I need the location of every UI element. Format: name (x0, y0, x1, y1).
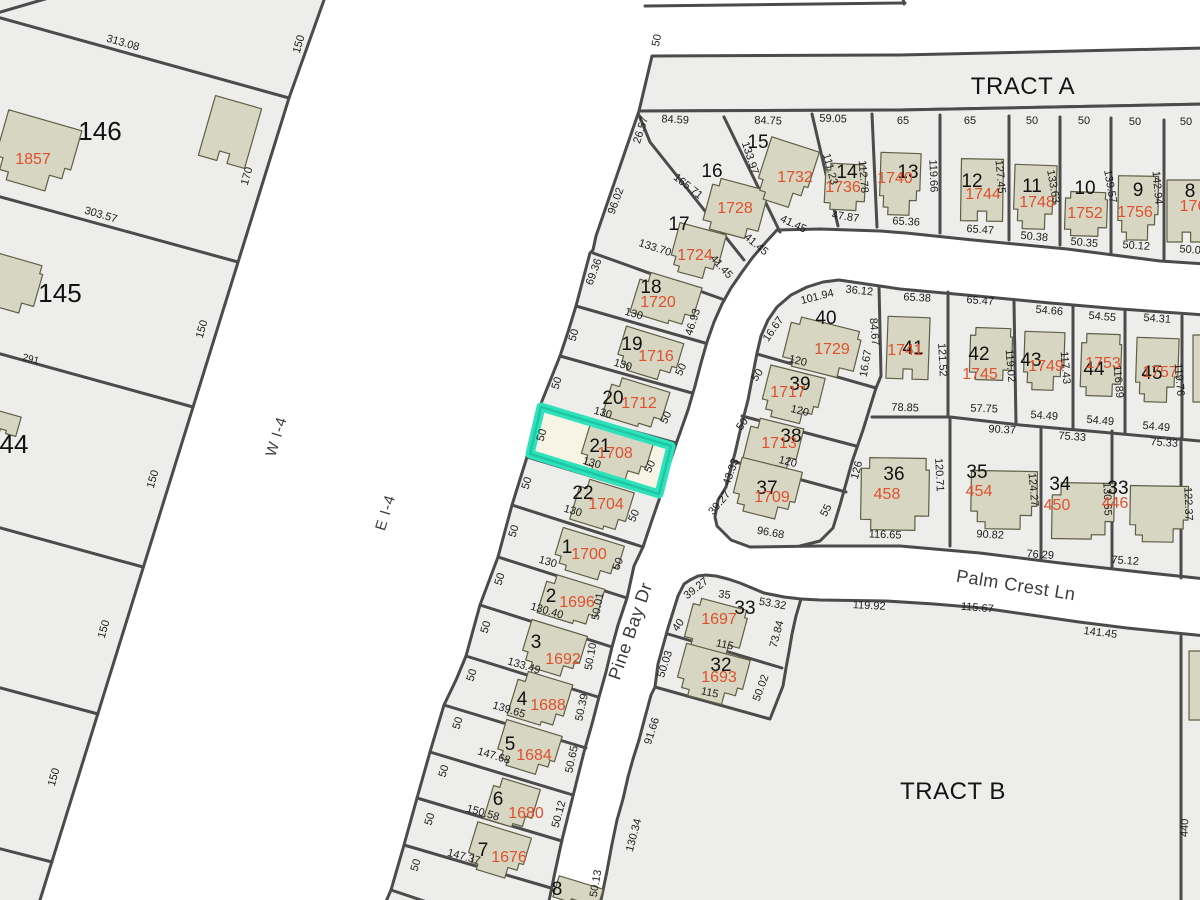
svg-text:454: 454 (966, 483, 993, 500)
svg-text:1708: 1708 (597, 445, 633, 462)
svg-text:2: 2 (546, 586, 557, 607)
svg-text:90.37: 90.37 (988, 423, 1016, 436)
svg-text:84.75: 84.75 (754, 115, 782, 128)
svg-text:TRACT B: TRACT B (900, 778, 1006, 805)
svg-text:1857: 1857 (15, 151, 51, 168)
svg-text:122.37: 122.37 (1181, 487, 1194, 521)
svg-text:84.59: 84.59 (661, 113, 689, 126)
svg-text:440: 440 (1179, 819, 1192, 838)
svg-text:17: 17 (668, 214, 689, 235)
svg-text:1728: 1728 (717, 200, 753, 217)
svg-text:1697: 1697 (701, 611, 737, 628)
svg-text:1717: 1717 (770, 384, 806, 401)
svg-text:42: 42 (968, 344, 989, 365)
svg-text:1716: 1716 (638, 348, 674, 365)
svg-text:50: 50 (1180, 116, 1192, 128)
svg-text:1700: 1700 (571, 546, 607, 563)
svg-text:65: 65 (897, 115, 909, 127)
svg-text:3: 3 (531, 632, 542, 653)
svg-text:65.38: 65.38 (903, 291, 931, 304)
svg-text:1693: 1693 (701, 669, 737, 686)
svg-text:1724: 1724 (677, 247, 713, 264)
svg-text:84.67: 84.67 (867, 318, 881, 346)
svg-text:75.12: 75.12 (1111, 554, 1139, 568)
svg-text:50: 50 (1026, 115, 1038, 127)
svg-text:54.49: 54.49 (1142, 420, 1170, 434)
svg-text:1704: 1704 (588, 496, 624, 513)
svg-text:75.33: 75.33 (1150, 436, 1178, 450)
svg-text:36: 36 (883, 464, 904, 485)
svg-text:1688: 1688 (530, 697, 566, 714)
svg-text:65: 65 (964, 115, 976, 127)
svg-text:119.66: 119.66 (926, 159, 939, 192)
svg-text:78.85: 78.85 (891, 402, 919, 415)
svg-text:146: 146 (78, 116, 121, 146)
svg-text:40: 40 (815, 308, 836, 329)
svg-text:145: 145 (38, 278, 81, 308)
svg-text:6: 6 (493, 789, 504, 810)
svg-text:1741: 1741 (887, 342, 923, 359)
svg-text:75.33: 75.33 (1058, 430, 1086, 444)
svg-text:1684: 1684 (516, 747, 552, 764)
svg-text:TRACT A: TRACT A (971, 73, 1075, 100)
svg-text:9: 9 (1133, 180, 1144, 201)
svg-text:50: 50 (1078, 115, 1090, 127)
svg-text:1712: 1712 (621, 395, 657, 412)
svg-text:54.66: 54.66 (1035, 304, 1063, 318)
svg-text:50: 50 (650, 33, 664, 47)
svg-text:1692: 1692 (545, 651, 581, 668)
svg-text:1756: 1756 (1117, 204, 1153, 221)
svg-text:59.05: 59.05 (819, 113, 847, 126)
svg-text:76.29: 76.29 (1026, 548, 1054, 562)
svg-text:1745: 1745 (962, 366, 998, 383)
svg-text:121.52: 121.52 (935, 343, 949, 377)
svg-text:1713: 1713 (761, 435, 797, 452)
svg-text:54.49: 54.49 (1086, 414, 1114, 428)
svg-text:50.35: 50.35 (1070, 236, 1098, 250)
svg-text:1729: 1729 (814, 341, 850, 358)
svg-text:1680: 1680 (508, 805, 544, 822)
svg-text:50.0: 50.0 (1179, 243, 1200, 256)
svg-text:54.49: 54.49 (1030, 409, 1058, 423)
svg-text:1732: 1732 (777, 169, 813, 186)
svg-text:1696: 1696 (559, 594, 595, 611)
svg-text:50: 50 (1129, 116, 1141, 128)
svg-text:116.65: 116.65 (868, 528, 901, 541)
svg-text:119.92: 119.92 (852, 599, 885, 613)
svg-text:120.71: 120.71 (932, 458, 946, 492)
svg-text:50.38: 50.38 (1020, 230, 1048, 244)
svg-text:446: 446 (1102, 495, 1129, 512)
svg-text:90.82: 90.82 (976, 528, 1004, 541)
svg-text:1720: 1720 (640, 294, 676, 311)
svg-text:1740: 1740 (877, 170, 913, 187)
svg-text:8: 8 (552, 879, 563, 900)
svg-text:458: 458 (874, 486, 901, 503)
svg-text:44: 44 (0, 429, 28, 459)
svg-text:57.75: 57.75 (970, 403, 998, 416)
svg-text:1752: 1752 (1067, 205, 1103, 222)
svg-text:50.12: 50.12 (1122, 239, 1150, 253)
svg-text:65.47: 65.47 (966, 223, 994, 237)
svg-text:54.55: 54.55 (1088, 310, 1116, 324)
svg-text:54.31: 54.31 (1143, 312, 1171, 326)
svg-text:65.47: 65.47 (966, 294, 994, 308)
svg-text:450: 450 (1044, 497, 1071, 514)
svg-text:16: 16 (701, 161, 722, 182)
svg-text:35: 35 (718, 588, 732, 602)
svg-text:1676: 1676 (491, 849, 527, 866)
svg-text:10: 10 (1074, 178, 1095, 199)
svg-text:1709: 1709 (754, 489, 790, 506)
svg-text:35: 35 (966, 462, 987, 483)
svg-text:33: 33 (734, 598, 755, 619)
svg-text:5: 5 (505, 734, 516, 755)
svg-text:34: 34 (1049, 474, 1071, 495)
svg-text:65.36: 65.36 (892, 215, 920, 228)
svg-text:176: 176 (1180, 198, 1200, 215)
